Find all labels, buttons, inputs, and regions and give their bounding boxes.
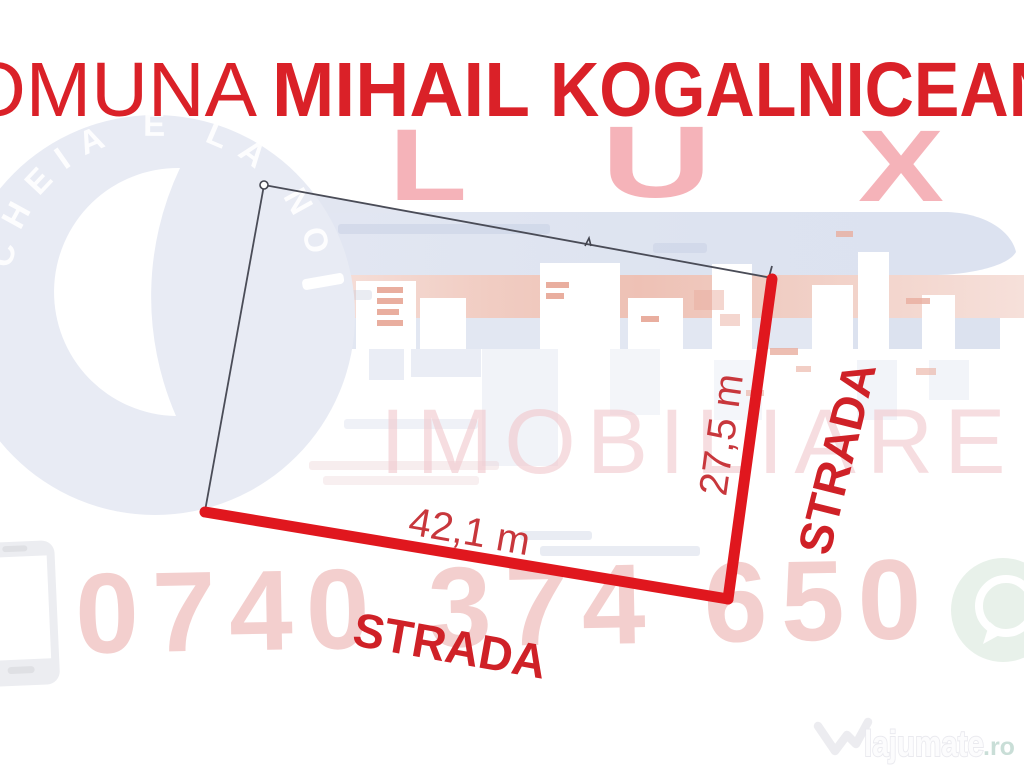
svg-text:MIHAIL: MIHAIL xyxy=(272,47,530,133)
svg-text:.ro: .ro xyxy=(983,733,1015,761)
svg-text:KOGALNICEAN: KOGALNICEAN xyxy=(550,47,1024,133)
svg-text:lajumate: lajumate xyxy=(864,723,984,764)
svg-text:COMUNA: COMUNA xyxy=(0,47,258,133)
